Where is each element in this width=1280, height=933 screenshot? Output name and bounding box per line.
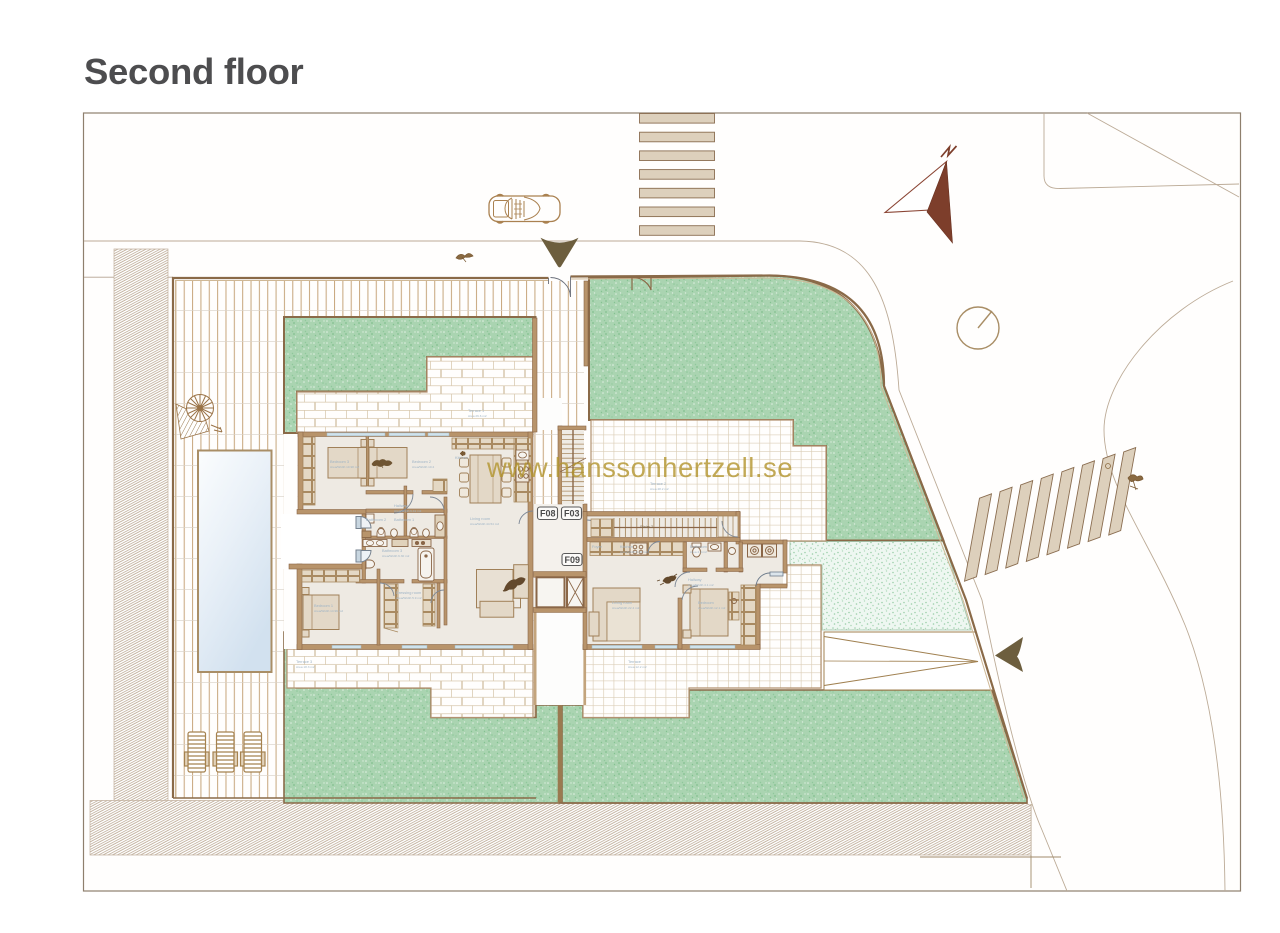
svg-text:Area 48.2 m2: Area 48.2 m2	[650, 487, 669, 491]
svg-text:Area/Width 14.96 m2: Area/Width 14.96 m2	[314, 609, 343, 613]
svg-text:Area/Width 8.20 m2: Area/Width 8.20 m2	[620, 550, 648, 554]
svg-text:Area/Width 5.9 m2: Area/Width 5.9 m2	[396, 596, 422, 600]
svg-text:Terrace 3: Terrace 3	[296, 659, 312, 664]
svg-text:Dressing room: Dressing room	[396, 590, 421, 595]
svg-text:Area 26.6 m2: Area 26.6 m2	[468, 414, 487, 418]
svg-text:Area/Width 22.4 m2: Area/Width 22.4 m2	[612, 606, 640, 610]
svg-text:Bedroom 1: Bedroom 1	[314, 603, 333, 608]
svg-text:Bathroom 1: Bathroom 1	[394, 517, 414, 522]
svg-text:Terrace 1: Terrace 1	[468, 408, 484, 413]
svg-text:Stairs 2: Stairs 2	[640, 524, 653, 529]
svg-text:F09: F09	[565, 555, 581, 565]
svg-text:Area/Width 12.1 m2: Area/Width 12.1 m2	[698, 606, 726, 610]
svg-text:F03: F03	[564, 509, 580, 519]
svg-text:Area 12.2 m2: Area 12.2 m2	[628, 665, 647, 669]
svg-text:Living room: Living room	[470, 516, 490, 521]
svg-text:Bathroom: Bathroom	[690, 544, 707, 549]
svg-text:Area/Width 10.98 m2: Area/Width 10.98 m2	[330, 465, 359, 469]
svg-text:Bedroom 3: Bedroom 3	[330, 459, 349, 464]
svg-text:Living room: Living room	[612, 600, 632, 605]
svg-text:Area/Width 4.1 m2: Area/Width 4.1 m2	[688, 583, 714, 587]
svg-text:Kitchen: Kitchen	[455, 455, 468, 460]
svg-text:Bedroom 2: Bedroom 2	[412, 459, 431, 464]
svg-text:Area 18.3 m2: Area 18.3 m2	[296, 665, 315, 669]
svg-text:Foyer: Foyer	[592, 544, 603, 549]
svg-text:Area 4.4 m2: Area 4.4 m2	[690, 550, 707, 554]
svg-text:F08: F08	[540, 509, 556, 519]
svg-text:Terrace: Terrace	[628, 659, 641, 664]
svg-text:Area/Width 6.30 m2: Area/Width 6.30 m2	[382, 554, 410, 558]
svg-text:Kitchen: Kitchen	[620, 544, 633, 549]
svg-text:Area/Width 9.41 m2: Area/Width 9.41 m2	[394, 509, 422, 513]
svg-text:Area/Width 10.2: Area/Width 10.2	[412, 465, 434, 469]
svg-text:Bedroom: Bedroom	[698, 600, 714, 605]
svg-text:www.hanssonhertzell.se: www.hanssonhertzell.se	[486, 452, 793, 483]
svg-text:Bathroom 3: Bathroom 3	[382, 548, 402, 553]
svg-text:Second floor: Second floor	[84, 51, 304, 92]
svg-text:Bathroom 2: Bathroom 2	[366, 517, 386, 522]
svg-text:Hallway: Hallway	[394, 503, 408, 508]
svg-text:Area/Width 44.54 m2: Area/Width 44.54 m2	[470, 522, 499, 526]
svg-text:Hallway: Hallway	[688, 577, 702, 582]
